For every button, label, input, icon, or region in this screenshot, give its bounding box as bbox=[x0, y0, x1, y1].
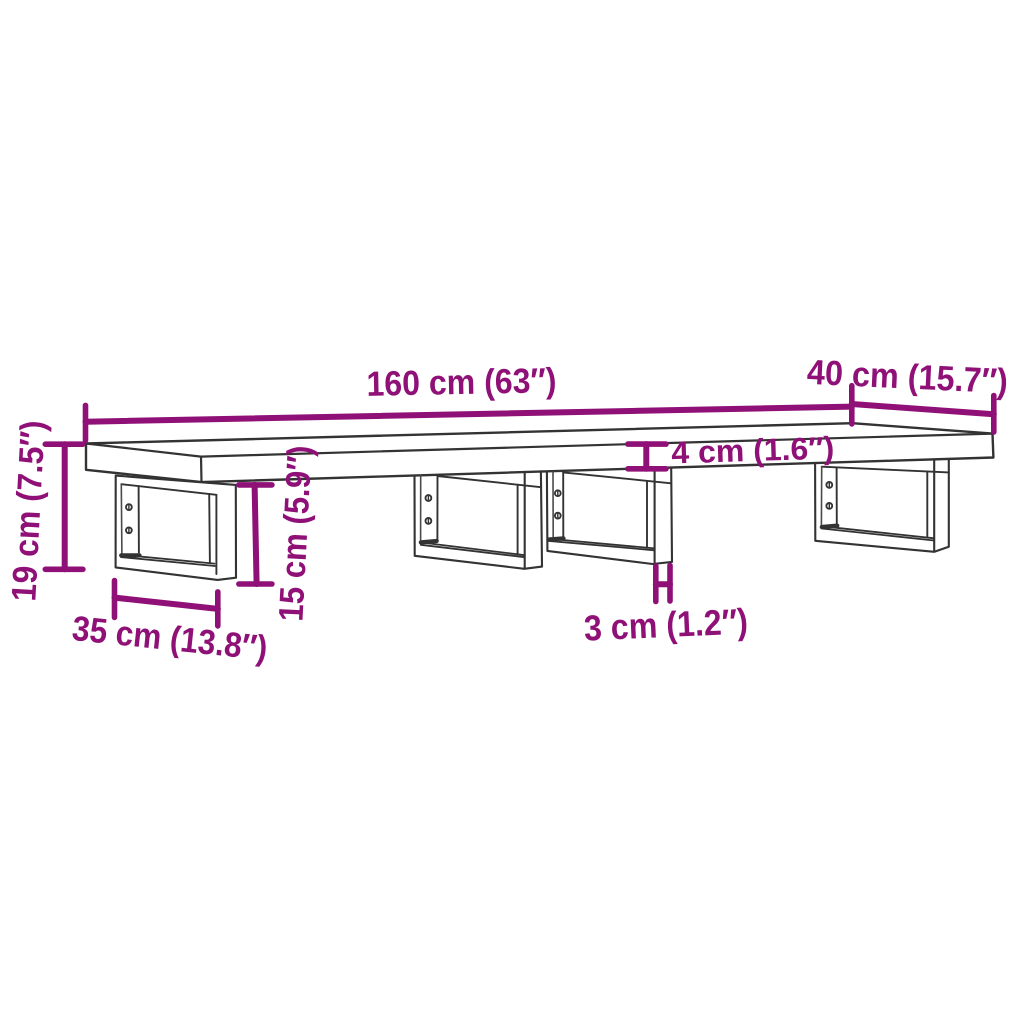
svg-text:4 cm (1.6″): 4 cm (1.6″) bbox=[671, 429, 835, 470]
svg-text:160 cm (63″): 160 cm (63″) bbox=[366, 361, 557, 404]
svg-text:3 cm (1.2″): 3 cm (1.2″) bbox=[583, 600, 749, 648]
